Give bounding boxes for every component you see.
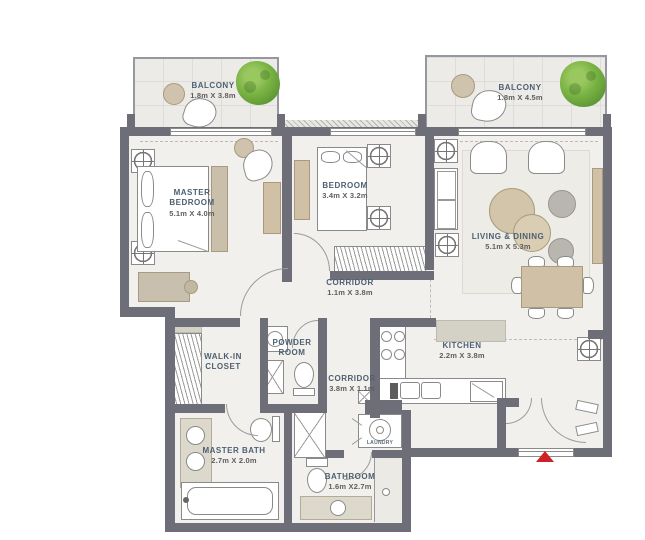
wall	[425, 136, 434, 270]
window	[330, 128, 416, 136]
bedroom-closet	[334, 246, 426, 272]
label-kitchen: KITCHEN 2.2m X 3.8m	[418, 341, 506, 361]
light-icon	[577, 337, 601, 361]
room-name: CORRIDOR	[306, 278, 394, 288]
pouf	[548, 190, 576, 218]
room-dims: 2.7m X 2.0m	[192, 456, 276, 466]
room-dims: 5.1m X 5.3m	[452, 242, 564, 252]
sofa-cushion	[437, 200, 456, 229]
side-table-icon	[434, 139, 458, 163]
wall	[497, 398, 519, 407]
room-dims: 1.1m X 3.8m	[306, 288, 394, 298]
sofa	[434, 168, 458, 230]
room-name: BATHROOM	[308, 472, 392, 482]
room-name: BALCONY	[162, 81, 264, 91]
room-name: ROOM	[266, 348, 318, 358]
armchair	[470, 141, 507, 174]
wall	[326, 450, 344, 458]
room-dims: 1.6m X2.7m	[308, 482, 392, 492]
label-corridor-main: CORRIDOR 1.1m X 3.8m	[306, 278, 394, 298]
basin	[186, 426, 205, 445]
label-balcony-right: BALCONY 1.8m X 4.5m	[468, 83, 572, 103]
wall	[165, 318, 240, 327]
sliding-door	[458, 128, 586, 136]
tv-console	[592, 168, 603, 264]
sink-basin	[400, 382, 420, 399]
wardrobe-master	[263, 182, 281, 234]
wall	[260, 404, 327, 413]
pillow	[321, 151, 340, 163]
room-name: CLOSET	[194, 362, 252, 372]
stove-burner	[381, 349, 392, 360]
label-master-bath: MASTER BATH 2.7m X 2.0m	[192, 446, 276, 466]
floor-plan: BALCONY 1.8m X 3.8m BALCONY 1.8m X 4.5m …	[0, 0, 645, 540]
desk	[138, 272, 190, 302]
label-master-bedroom: MASTER BEDROOM 5.1m X 4.0m	[148, 188, 236, 219]
label-balcony-left: BALCONY 1.8m X 3.8m	[162, 81, 264, 101]
room-name: BEDROOM	[148, 198, 236, 208]
wall	[260, 318, 268, 408]
room-name: MASTER BATH	[192, 446, 276, 456]
wall	[284, 404, 292, 532]
label-powder-room: POWDER ROOM	[266, 338, 318, 359]
room-dims: 1.8m X 3.8m	[162, 91, 264, 101]
label-living-dining: LIVING & DINING 5.1m X 5.3m	[452, 232, 564, 252]
bathroom-toilet-tank	[306, 458, 328, 467]
wall	[318, 318, 327, 413]
room-name: WALK-IN	[194, 352, 252, 362]
wall	[165, 404, 225, 413]
wall	[165, 307, 175, 532]
room-dims: 5.1m X 4.0m	[148, 209, 236, 219]
basin	[330, 500, 346, 516]
balcony-post	[603, 114, 611, 127]
room-name: BEDROOM	[303, 181, 387, 191]
label-bathroom: BATHROOM 1.6m X2.7m	[308, 472, 392, 492]
entry-arrow	[536, 451, 554, 462]
wall	[372, 450, 402, 458]
kitchen-upper-cabinet	[436, 320, 506, 342]
stove-burner	[381, 331, 392, 342]
stove-burner	[394, 349, 405, 360]
dining-chair	[583, 277, 594, 294]
balcony-post	[277, 114, 285, 127]
room-name: LAUNDRY	[352, 440, 408, 447]
sliding-door	[170, 128, 272, 136]
shaft-box	[294, 412, 326, 458]
room-name: LIVING & DINING	[452, 232, 564, 242]
exterior-hatch	[283, 120, 425, 127]
wall	[402, 444, 411, 532]
wall	[588, 330, 612, 339]
powder-toilet-tank	[293, 388, 315, 396]
room-dims: 3.8m X 1.1m	[314, 384, 390, 394]
washer-drum-inner	[376, 426, 384, 434]
room-name: KITCHEN	[418, 341, 506, 351]
dining-chair	[528, 308, 545, 319]
dashed-line	[140, 141, 278, 142]
armchair	[528, 141, 565, 174]
stove-burner	[394, 331, 405, 342]
sofa-cushion	[437, 171, 456, 200]
dining-table	[521, 266, 583, 308]
dashed-line	[430, 274, 431, 318]
room-name: MASTER	[148, 188, 236, 198]
balcony-post	[418, 114, 426, 127]
label-walk-in-closet: WALK-IN CLOSET	[194, 352, 252, 373]
balcony-post	[127, 114, 135, 127]
desk-chair	[184, 280, 198, 294]
room-name: POWDER	[266, 338, 318, 348]
label-corridor-kitchen: CORRIDOR 3.8m X 1.1m	[314, 374, 390, 394]
room-dims: 1.8m X 4.5m	[468, 93, 572, 103]
wall	[370, 318, 436, 327]
room-dims: 2.2m X 3.8m	[418, 351, 506, 361]
wall	[120, 127, 129, 317]
label-bedroom: BEDROOM 3.4m X 3.2m	[303, 181, 387, 201]
room-name: CORRIDOR	[314, 374, 390, 384]
lamp-icon	[367, 206, 391, 230]
tub-faucet	[183, 497, 189, 503]
label-laundry: LAUNDRY	[352, 440, 408, 447]
room-dims: 3.4m X 3.2m	[303, 191, 387, 201]
faucet	[390, 383, 398, 399]
room-name: BALCONY	[468, 83, 572, 93]
sink-basin	[421, 382, 441, 399]
bathtub-inner	[187, 487, 273, 515]
wall	[603, 127, 612, 457]
dining-chair	[557, 308, 574, 319]
lamp-icon	[367, 144, 391, 168]
masterbath-toilet-tank	[272, 416, 280, 442]
wall	[365, 400, 402, 414]
dashed-line	[440, 141, 598, 142]
wall-bedroom-divider	[282, 136, 292, 282]
